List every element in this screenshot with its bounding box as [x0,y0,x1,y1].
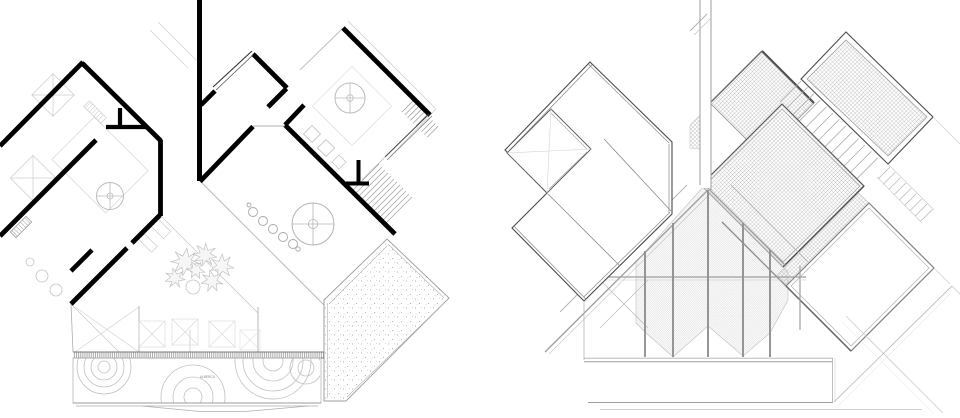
svg-text:ALBERCA: ALBERCA [200,375,216,379]
